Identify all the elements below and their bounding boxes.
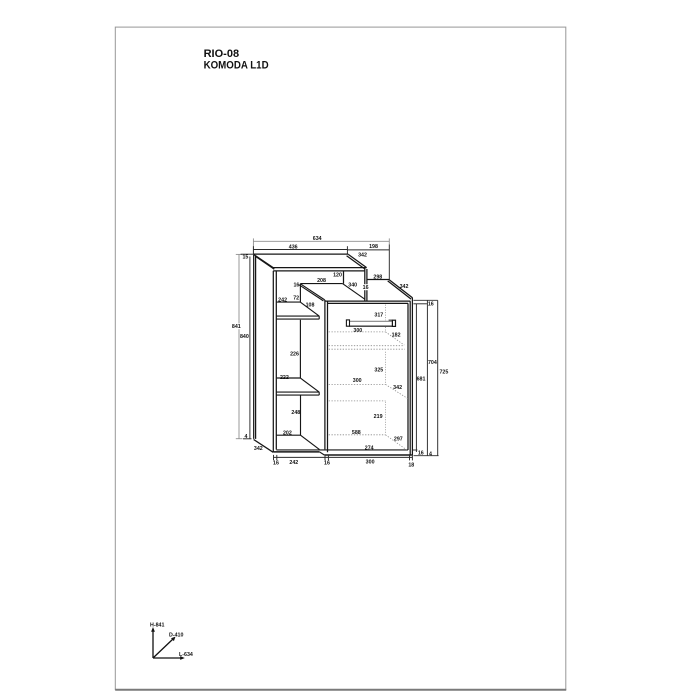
- svg-text:342: 342: [358, 252, 367, 258]
- svg-text:725: 725: [439, 370, 448, 376]
- svg-text:16: 16: [418, 451, 424, 457]
- svg-text:120: 120: [333, 273, 342, 279]
- svg-text:18: 18: [408, 462, 414, 468]
- svg-text:208: 208: [317, 278, 326, 284]
- svg-text:182: 182: [392, 332, 401, 338]
- svg-text:704: 704: [428, 360, 437, 366]
- svg-text:15: 15: [242, 254, 248, 260]
- svg-text:300: 300: [353, 378, 362, 384]
- svg-text:342: 342: [393, 385, 402, 391]
- svg-text:325: 325: [374, 367, 383, 373]
- svg-text:242: 242: [278, 297, 287, 303]
- svg-text:108: 108: [306, 302, 315, 308]
- svg-text:72: 72: [293, 295, 299, 301]
- svg-text:16: 16: [273, 461, 279, 467]
- svg-text:KOMODA L1D: KOMODA L1D: [204, 60, 269, 72]
- svg-text:681: 681: [417, 377, 426, 383]
- svg-text:RIO-08: RIO-08: [204, 48, 240, 60]
- svg-text:248: 248: [291, 410, 300, 416]
- svg-text:588: 588: [352, 430, 361, 436]
- svg-text:298: 298: [373, 274, 382, 280]
- svg-text:16: 16: [324, 461, 330, 467]
- svg-text:297: 297: [394, 437, 403, 443]
- svg-text:317: 317: [374, 312, 383, 318]
- svg-text:300: 300: [366, 459, 375, 465]
- svg-text:342: 342: [400, 284, 409, 290]
- svg-text:300: 300: [353, 328, 362, 334]
- svg-text:4: 4: [429, 452, 432, 458]
- svg-text:16: 16: [428, 301, 434, 307]
- svg-text:841: 841: [232, 324, 241, 330]
- svg-text:198: 198: [369, 244, 378, 250]
- svg-text:202: 202: [283, 431, 292, 437]
- svg-text:226: 226: [290, 351, 299, 357]
- svg-text:H-841: H-841: [150, 622, 164, 628]
- svg-text:16: 16: [293, 283, 299, 289]
- svg-text:340: 340: [348, 283, 357, 289]
- svg-text:634: 634: [313, 236, 322, 242]
- svg-text:840: 840: [240, 334, 249, 340]
- svg-text:274: 274: [365, 446, 374, 452]
- svg-text:219: 219: [374, 414, 383, 420]
- svg-text:4: 4: [245, 434, 248, 440]
- svg-text:436: 436: [289, 244, 298, 250]
- svg-text:342: 342: [254, 446, 263, 452]
- svg-text:222: 222: [280, 375, 289, 381]
- svg-text:L-634: L-634: [179, 652, 193, 658]
- svg-text:D-410: D-410: [169, 633, 183, 639]
- svg-text:16: 16: [363, 285, 369, 291]
- svg-text:242: 242: [289, 460, 298, 466]
